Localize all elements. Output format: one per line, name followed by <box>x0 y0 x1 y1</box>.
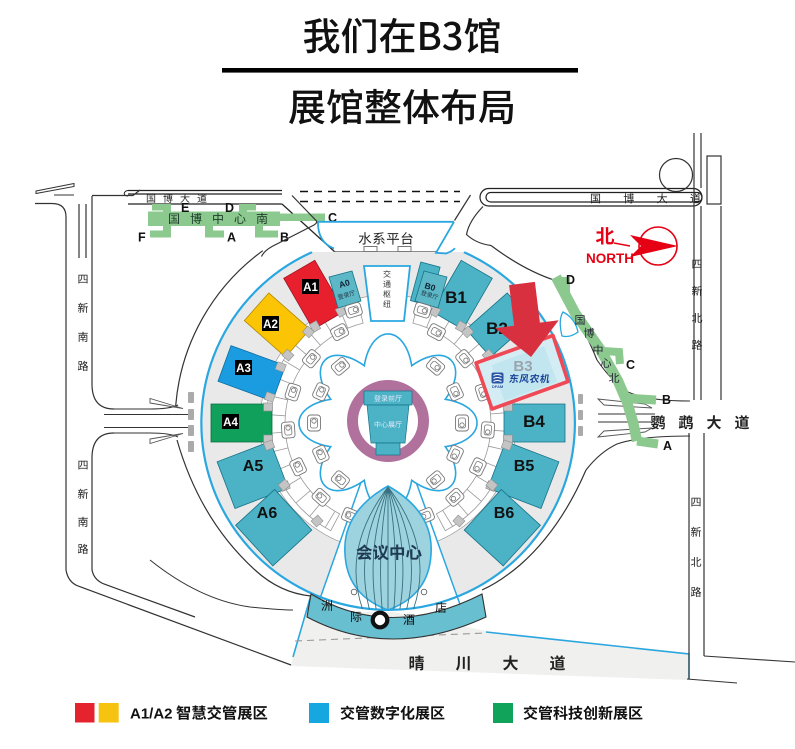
svg-text:NORTH: NORTH <box>586 251 634 266</box>
svg-text:B5: B5 <box>514 458 535 475</box>
svg-text:B6: B6 <box>494 505 515 522</box>
svg-text:A4: A4 <box>223 417 238 429</box>
svg-text:A6: A6 <box>257 505 278 522</box>
svg-text:B3: B3 <box>513 358 532 375</box>
svg-text:D: D <box>225 201 234 215</box>
svg-text:E: E <box>181 201 189 215</box>
svg-text:B1: B1 <box>445 288 467 307</box>
svg-text:D: D <box>566 273 575 287</box>
svg-text:A1/A2: A1/A2 <box>130 706 173 723</box>
svg-text:B: B <box>662 393 671 407</box>
svg-text:DFAM: DFAM <box>492 384 504 389</box>
svg-text:A3: A3 <box>236 363 251 375</box>
svg-text:A: A <box>227 231 236 245</box>
svg-text:C: C <box>328 211 337 225</box>
svg-text:B: B <box>280 231 289 245</box>
svg-text:A1: A1 <box>303 282 318 294</box>
svg-text:F: F <box>138 231 146 245</box>
svg-text:C: C <box>626 358 635 372</box>
svg-text:A: A <box>663 439 672 453</box>
svg-text:A2: A2 <box>263 319 278 331</box>
svg-text:A5: A5 <box>243 458 264 475</box>
svg-text:B4: B4 <box>523 412 545 431</box>
